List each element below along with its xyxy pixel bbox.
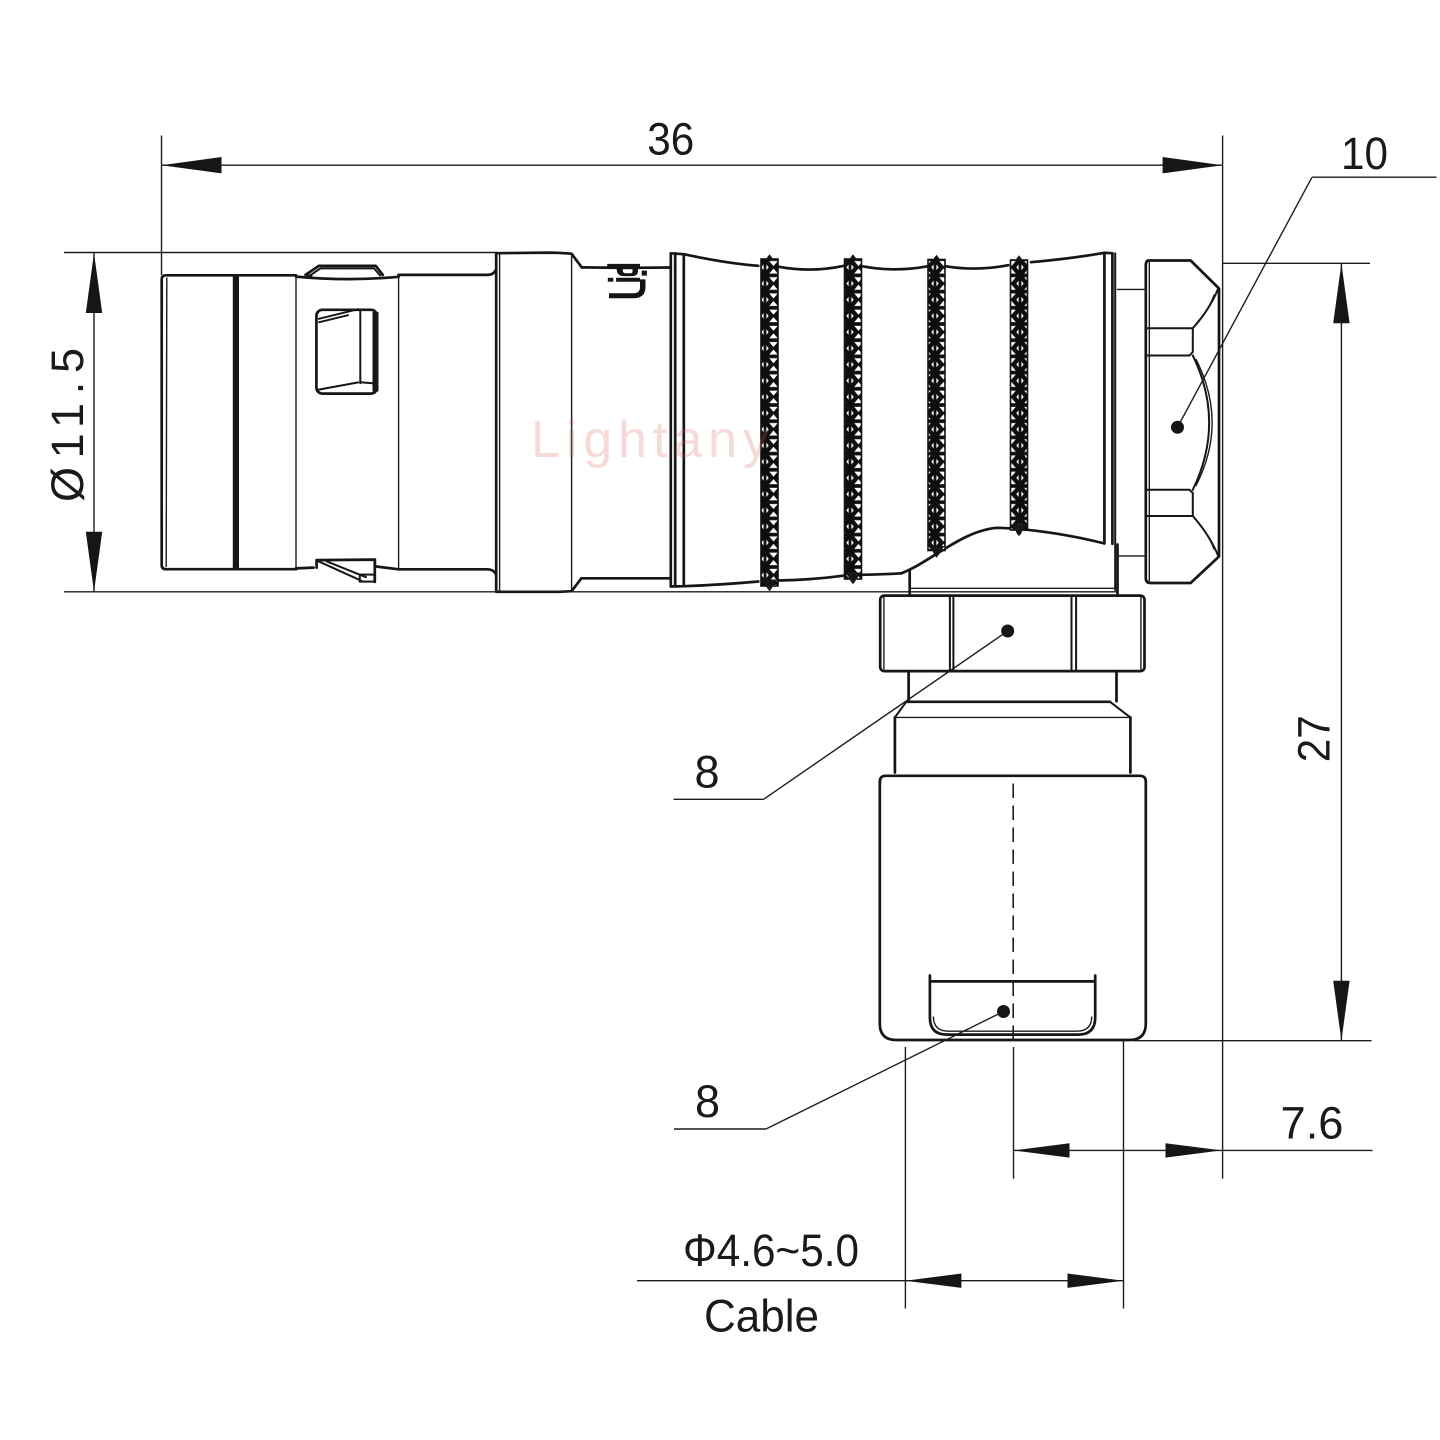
svg-text:Ø11.5: Ø11.5: [42, 348, 93, 502]
svg-text:Cable: Cable: [704, 1291, 819, 1342]
svg-text:8: 8: [695, 1076, 720, 1127]
svg-text:8: 8: [694, 747, 719, 798]
svg-text:Φ4.6~5.0: Φ4.6~5.0: [683, 1225, 859, 1276]
svg-text:27: 27: [1289, 715, 1340, 762]
svg-text:36: 36: [647, 113, 694, 164]
svg-text:10: 10: [1341, 128, 1388, 179]
svg-text:7.6: 7.6: [1281, 1098, 1344, 1149]
